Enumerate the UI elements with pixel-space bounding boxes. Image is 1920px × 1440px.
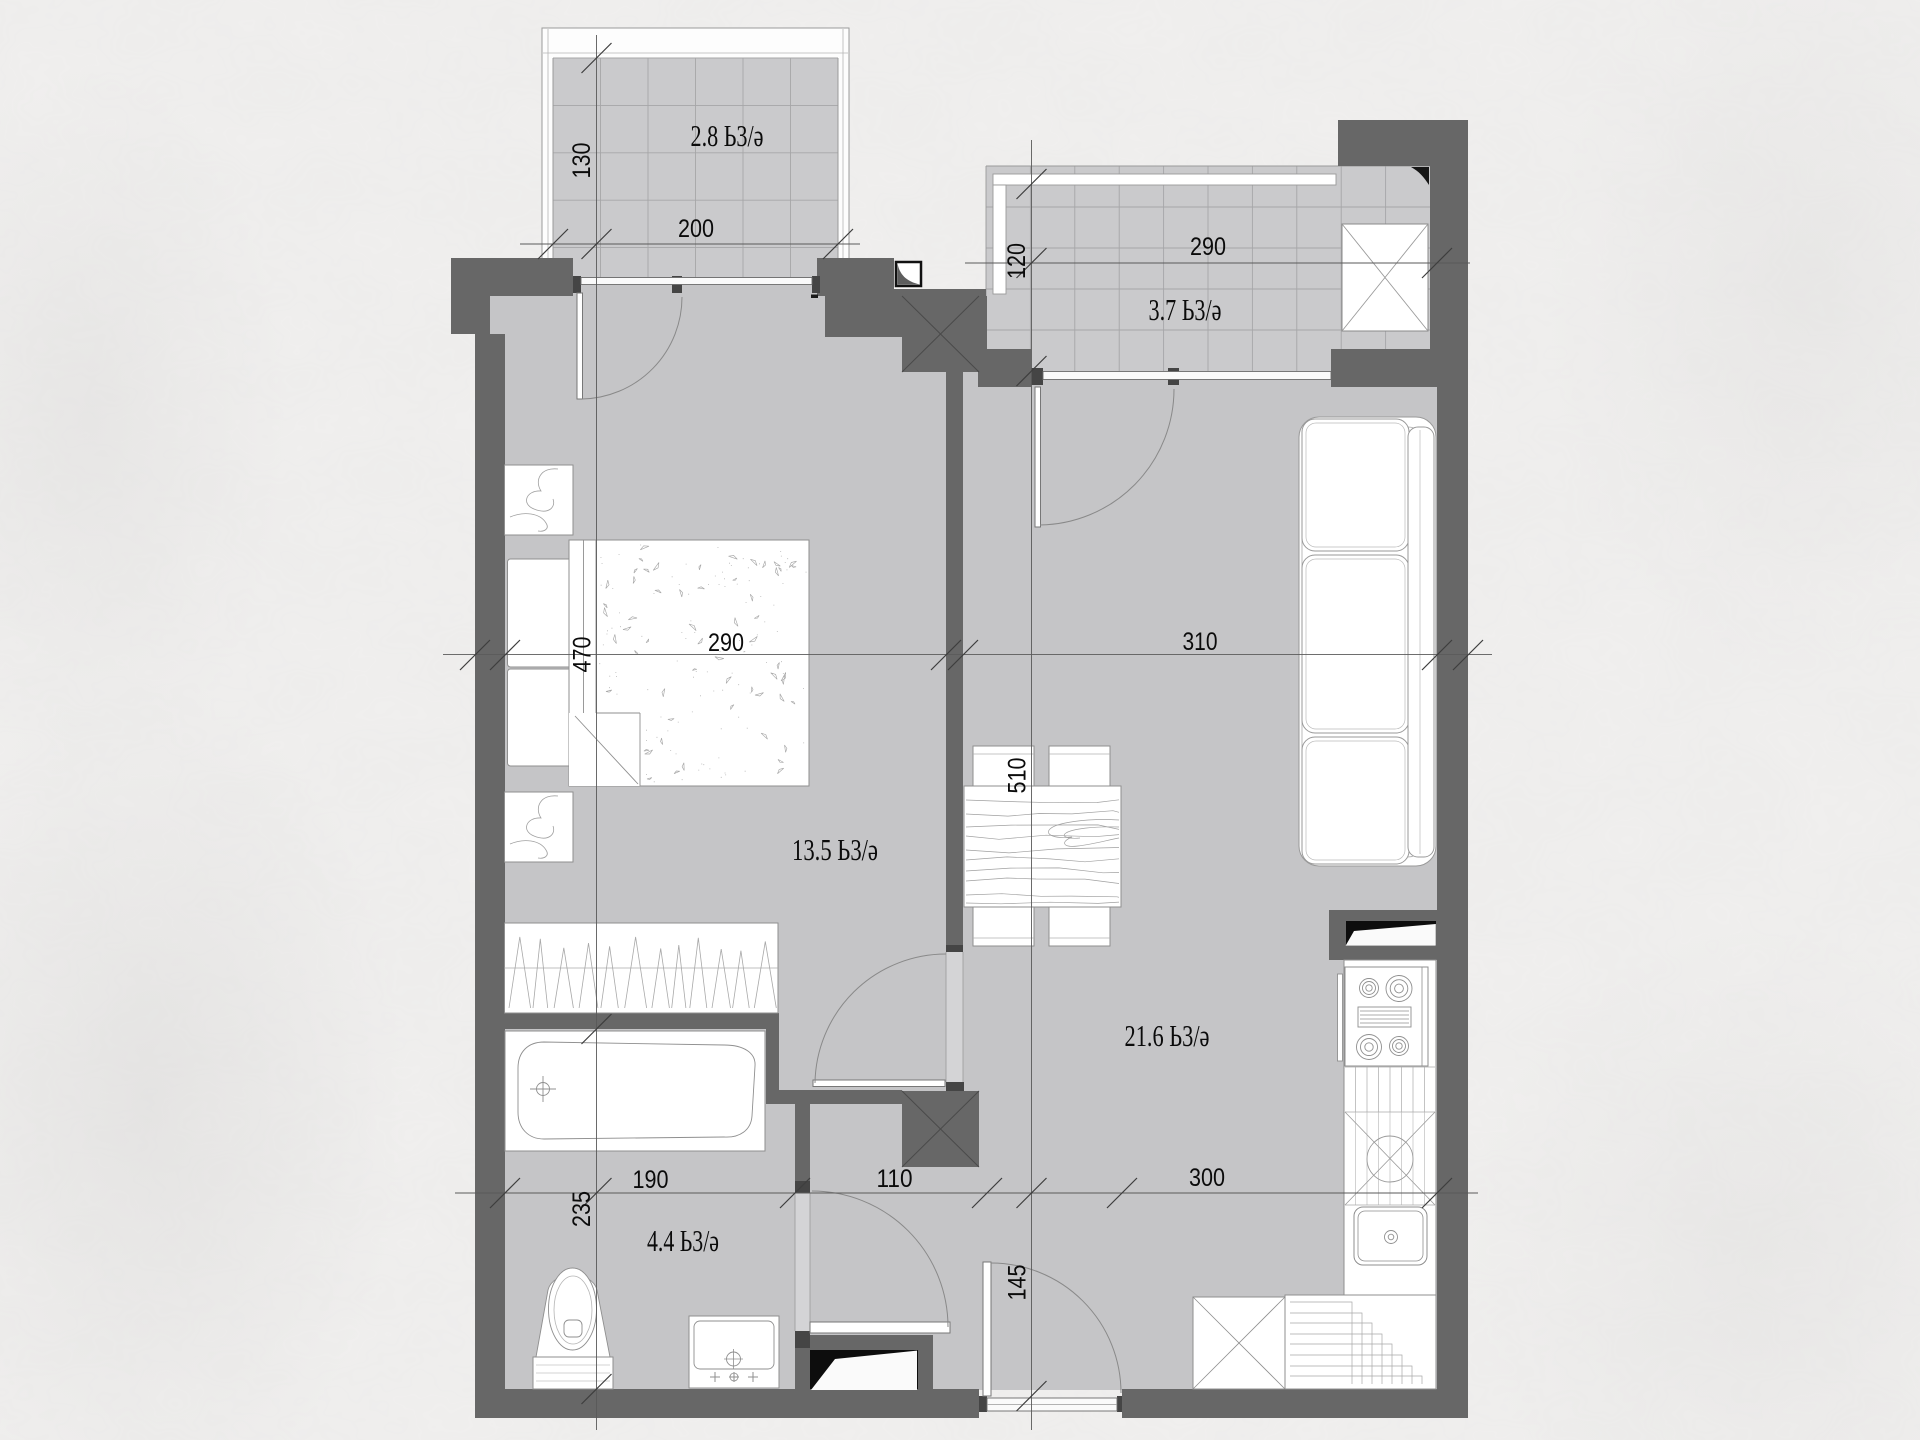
svg-text:120: 120 xyxy=(1003,243,1031,279)
svg-text:290: 290 xyxy=(708,629,744,657)
svg-text:130: 130 xyxy=(568,143,596,179)
svg-text:110: 110 xyxy=(877,1165,913,1193)
svg-text:21.6 Ь3/ə: 21.6 Ь3/ə xyxy=(1125,1018,1210,1053)
svg-text:13.5 Ь3/ə: 13.5 Ь3/ə xyxy=(792,832,878,867)
svg-text:200: 200 xyxy=(678,215,714,243)
svg-text:3.7 Ь3/ə: 3.7 Ь3/ə xyxy=(1149,292,1222,327)
svg-text:470: 470 xyxy=(569,637,597,673)
svg-text:510: 510 xyxy=(1004,758,1032,794)
svg-text:190: 190 xyxy=(633,1166,669,1194)
svg-text:310: 310 xyxy=(1183,628,1218,656)
svg-text:235: 235 xyxy=(568,1191,596,1227)
svg-text:145: 145 xyxy=(1004,1265,1032,1301)
svg-text:290: 290 xyxy=(1190,233,1226,261)
svg-text:2.8 Ь3/ə: 2.8 Ь3/ə xyxy=(691,118,764,153)
svg-text:4.4 Ь3/ə: 4.4 Ь3/ə xyxy=(647,1223,719,1258)
svg-text:300: 300 xyxy=(1189,1164,1225,1192)
